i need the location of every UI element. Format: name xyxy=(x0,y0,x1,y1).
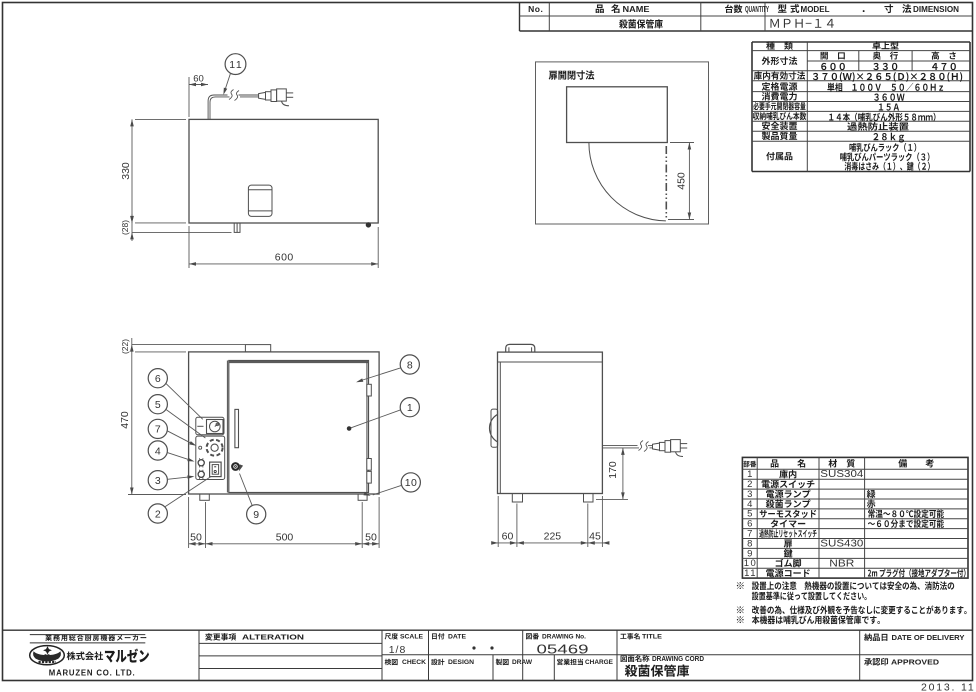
svg-text:50: 50 xyxy=(190,531,202,543)
svg-text:11: 11 xyxy=(744,568,757,579)
svg-text:60: 60 xyxy=(193,74,204,85)
svg-text:45: 45 xyxy=(589,530,601,542)
svg-text:500: 500 xyxy=(276,531,294,543)
svg-text:10: 10 xyxy=(405,477,418,489)
svg-text:QUANTITY: QUANTITY xyxy=(745,4,769,14)
svg-text:450: 450 xyxy=(676,172,688,190)
svg-text:05469: 05469 xyxy=(537,642,589,657)
svg-text:600: 600 xyxy=(275,251,294,263)
svg-text:DIMENSION: DIMENSION xyxy=(913,4,959,14)
svg-text:NAME: NAME xyxy=(623,4,650,14)
svg-text:170: 170 xyxy=(607,461,619,479)
svg-text:2013. 11: 2013. 11 xyxy=(921,682,976,692)
svg-text:7: 7 xyxy=(155,424,161,436)
svg-text:1: 1 xyxy=(407,402,413,414)
svg-text:3: 3 xyxy=(155,475,161,487)
svg-text:60: 60 xyxy=(502,530,514,542)
svg-text:DATE: DATE xyxy=(448,634,467,641)
svg-text:ALTERATION: ALTERATION xyxy=(242,633,304,642)
svg-text:DRAWING No.: DRAWING No. xyxy=(542,634,586,641)
svg-text:225: 225 xyxy=(544,530,562,542)
svg-text:8: 8 xyxy=(407,359,413,371)
svg-text:NBR: NBR xyxy=(829,557,854,569)
svg-text:(22): (22) xyxy=(120,339,130,354)
svg-text:No.: No. xyxy=(528,4,543,14)
svg-text:2: 2 xyxy=(155,508,161,520)
svg-text:MARUZEN CO. LTD.: MARUZEN CO. LTD. xyxy=(49,669,136,678)
svg-text:MODEL: MODEL xyxy=(801,4,830,14)
svg-text:CHECK: CHECK xyxy=(402,659,426,666)
svg-text:330: 330 xyxy=(120,162,132,180)
svg-text:4: 4 xyxy=(155,445,161,457)
svg-text:6: 6 xyxy=(155,373,161,385)
svg-text:APPROVED: APPROVED xyxy=(891,658,940,667)
svg-text:470: 470 xyxy=(119,411,131,429)
svg-text:DRAW: DRAW xyxy=(512,659,533,666)
svg-text:CHARGE: CHARGE xyxy=(585,659,614,666)
svg-text:DESIGN: DESIGN xyxy=(448,659,474,666)
svg-text:SUS430: SUS430 xyxy=(820,537,863,549)
svg-text:DRAWING CORD: DRAWING CORD xyxy=(652,656,704,663)
svg-text:5: 5 xyxy=(155,399,161,411)
svg-text:(28): (28) xyxy=(120,220,130,235)
svg-text:11: 11 xyxy=(229,59,243,71)
svg-text:SUS304: SUS304 xyxy=(820,468,863,480)
svg-text:SCALE: SCALE xyxy=(400,634,424,641)
svg-text:9: 9 xyxy=(253,509,259,521)
svg-text:50: 50 xyxy=(365,531,377,543)
svg-text:1/8: 1/8 xyxy=(389,644,407,656)
svg-text:DATE OF DELIVERY: DATE OF DELIVERY xyxy=(892,633,965,642)
svg-text:TITLE: TITLE xyxy=(642,634,663,641)
